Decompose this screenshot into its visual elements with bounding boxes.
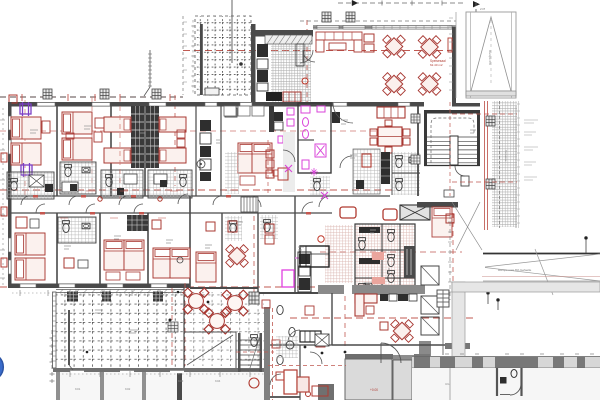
- svg-text:2.Pl: 2.Pl: [480, 7, 486, 11]
- svg-text:Rampe max 6% Gefaelle: Rampe max 6% Gefaelle: [498, 268, 532, 272]
- svg-text:62.40 m2: 62.40 m2: [430, 63, 443, 67]
- svg-text:Terrasse: Terrasse: [504, 150, 508, 162]
- svg-text:UG: UG: [445, 382, 450, 386]
- svg-text:K03: K03: [178, 379, 184, 383]
- svg-text:K02: K02: [125, 387, 131, 391]
- svg-text:K04: K04: [215, 379, 221, 383]
- svg-text:Rampe 6%: Rampe 6%: [488, 50, 492, 65]
- svg-text:+0.00: +0.00: [370, 388, 378, 392]
- svg-text:6%: 6%: [387, 268, 391, 273]
- svg-text:K01: K01: [75, 387, 81, 391]
